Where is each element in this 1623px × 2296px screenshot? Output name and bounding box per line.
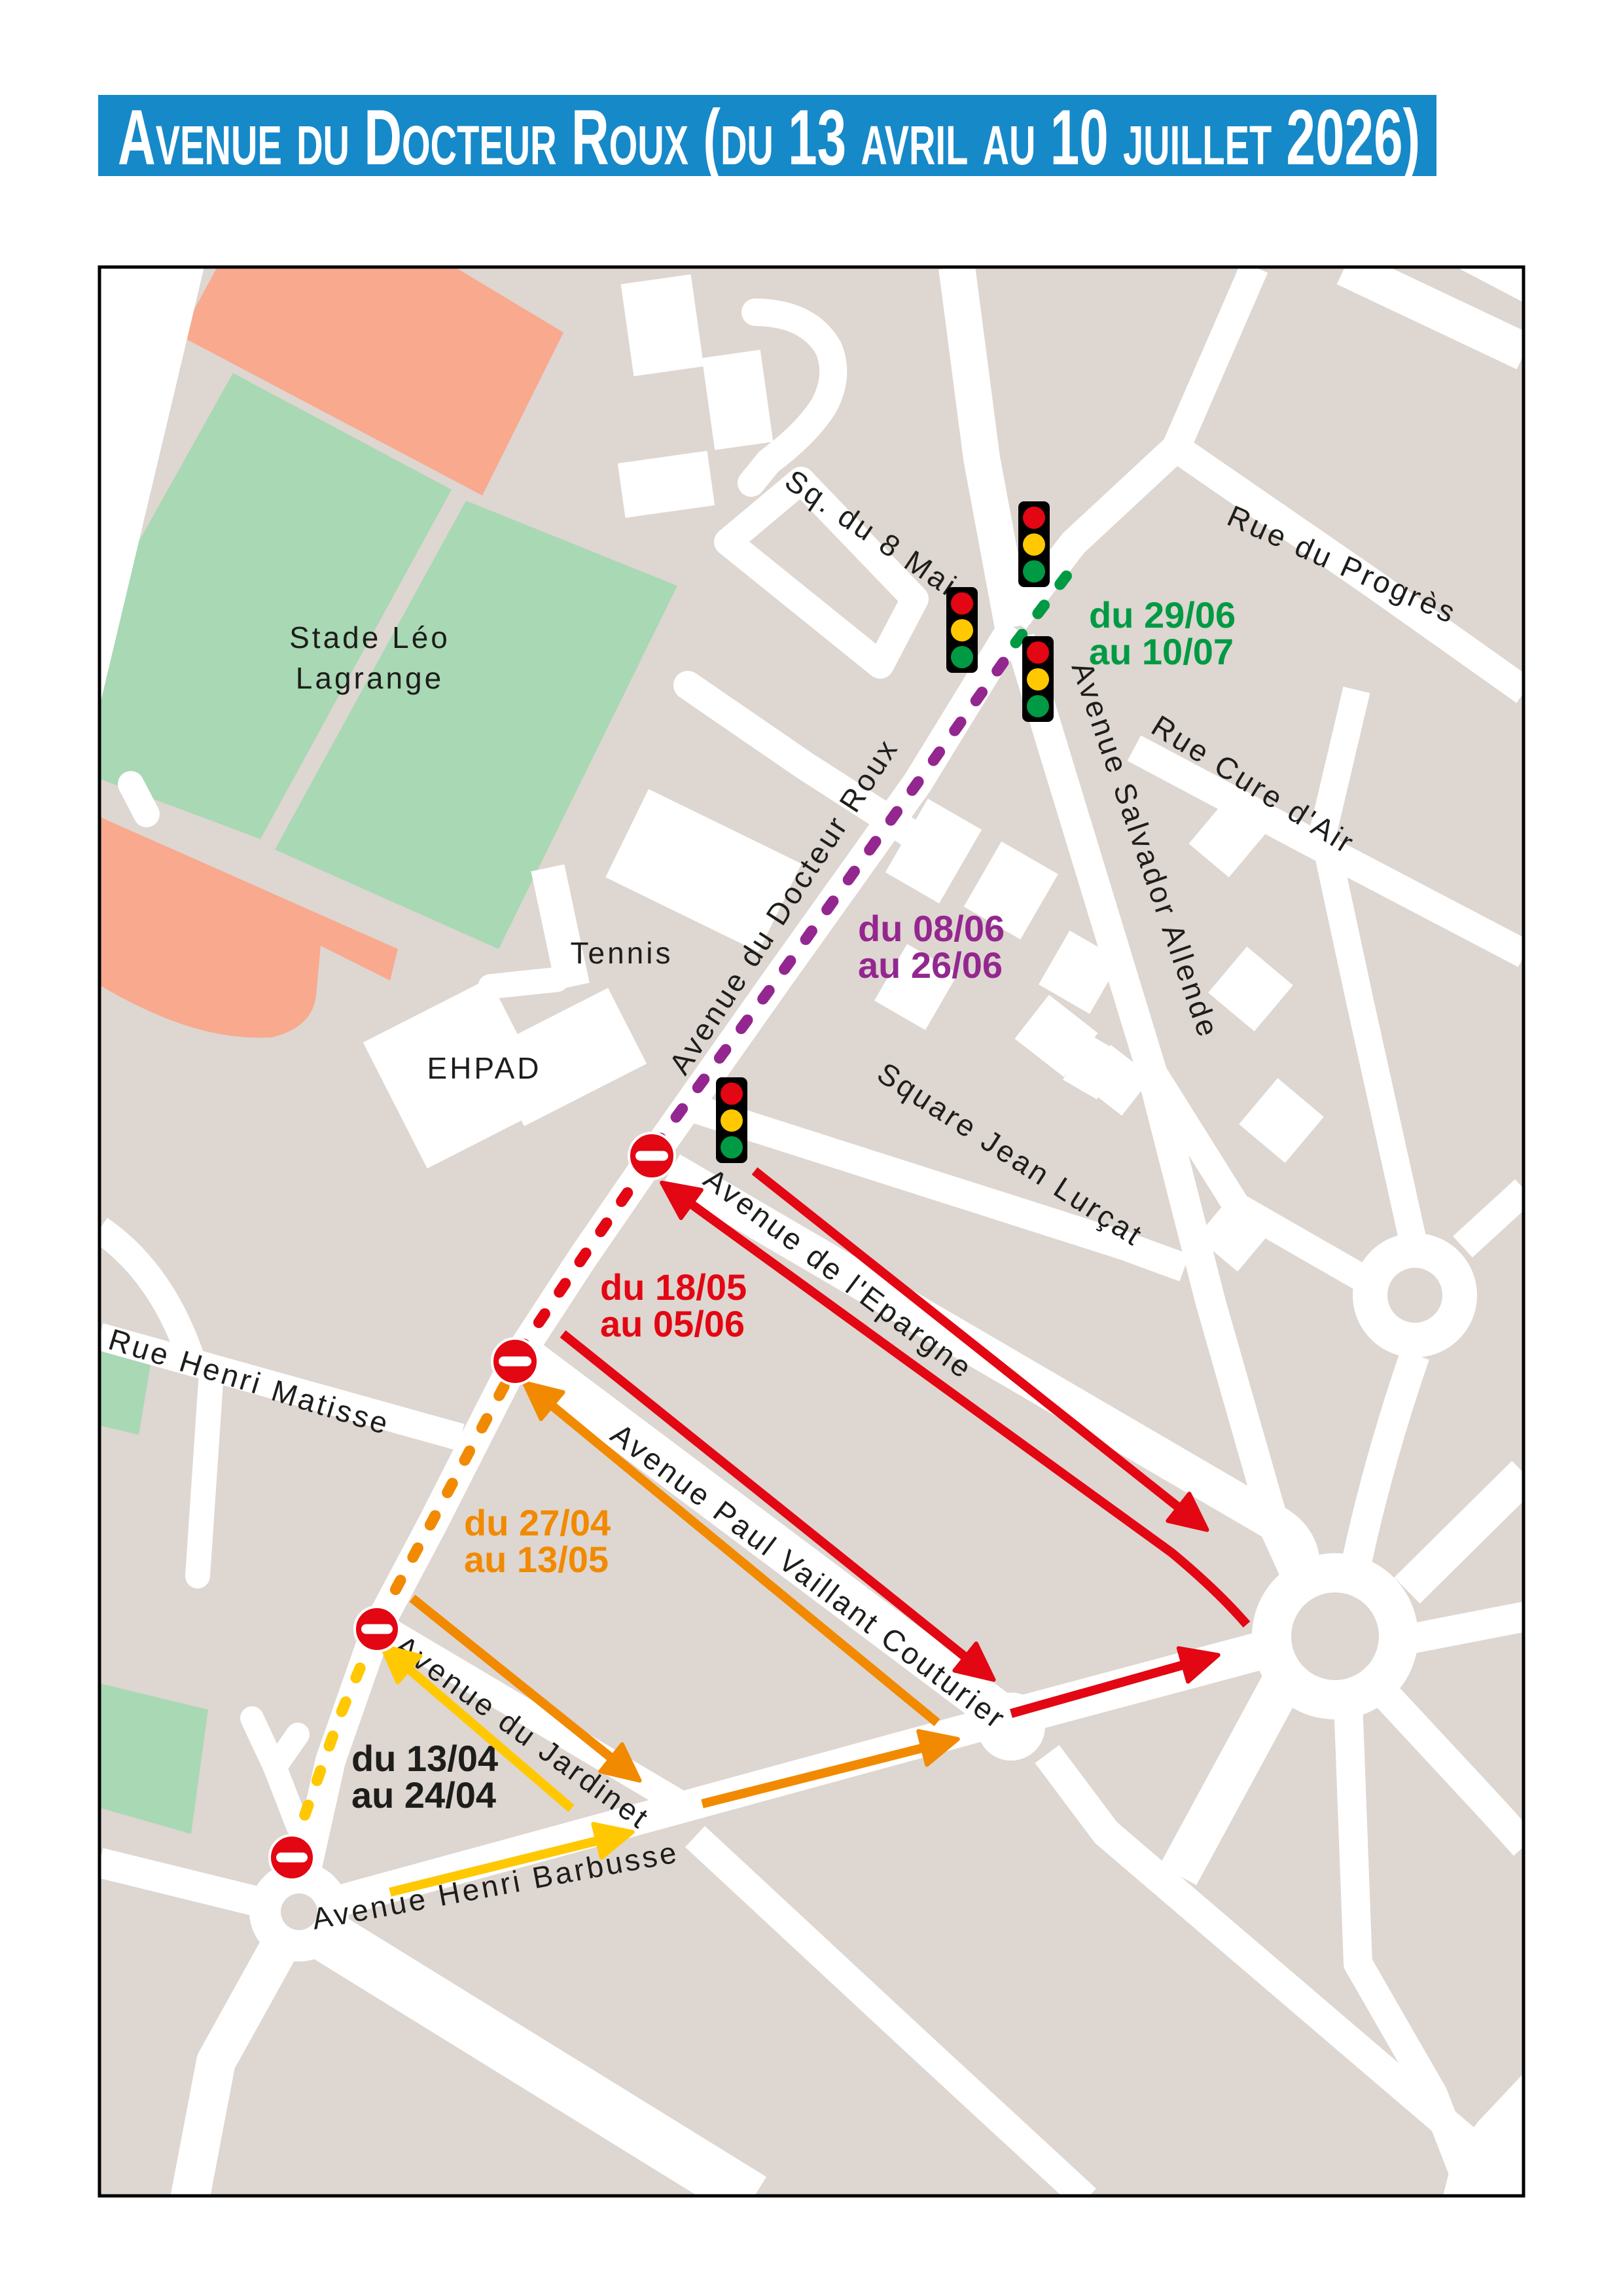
svg-text:au 10/07: au 10/07: [1089, 631, 1234, 672]
svg-text:au 24/04: au 24/04: [351, 1774, 496, 1816]
svg-text:au 26/06: au 26/06: [858, 944, 1003, 986]
svg-text:du 18/05: du 18/05: [600, 1266, 747, 1308]
svg-text:au 05/06: au 05/06: [600, 1303, 745, 1344]
svg-text:du 27/04: du 27/04: [464, 1502, 611, 1543]
svg-text:Lagrange: Lagrange: [296, 661, 444, 695]
svg-text:du 29/06: du 29/06: [1089, 594, 1236, 636]
svg-text:EHPAD: EHPAD: [427, 1051, 541, 1085]
svg-text:Tennis: Tennis: [571, 936, 673, 970]
svg-text:au 13/05: au 13/05: [464, 1539, 609, 1580]
svg-text:Stade Léo: Stade Léo: [289, 620, 450, 655]
svg-text:du 13/04: du 13/04: [351, 1738, 498, 1779]
svg-text:du 08/06: du 08/06: [858, 908, 1005, 949]
